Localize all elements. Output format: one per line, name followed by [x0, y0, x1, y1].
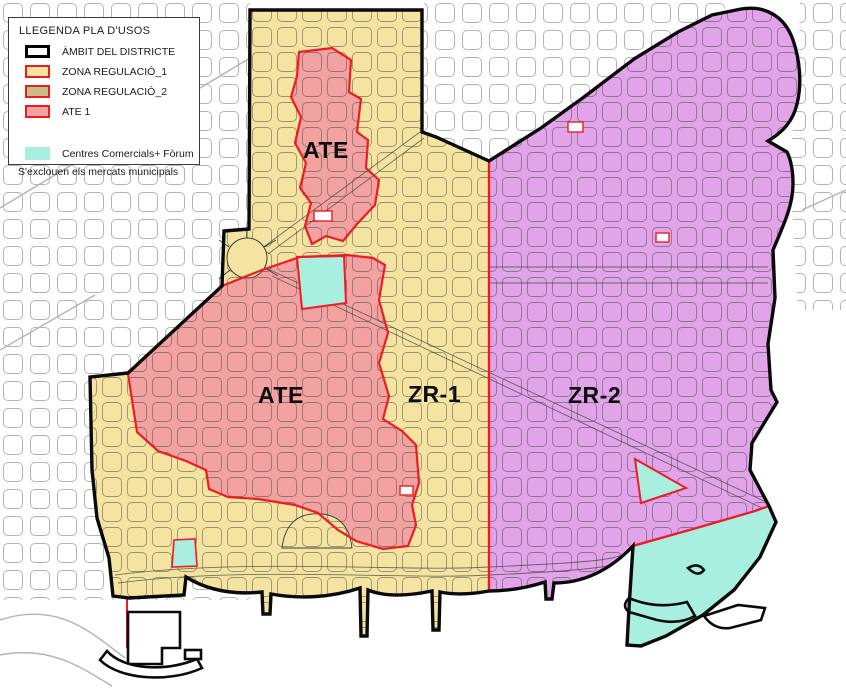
commercial-forum-swatch: [25, 147, 50, 160]
legend-item-label: ZONA REGULACIÓ_1: [62, 66, 167, 78]
legend-note: S'exclouen els mercats municipals: [18, 166, 193, 178]
legend-item-label: ATE 1: [62, 106, 90, 118]
market-4: [314, 211, 332, 221]
legend-item-label: ZONA REGULACIÓ_2: [62, 86, 167, 98]
legend-item-zr2: ZONA REGULACIÓ_2: [25, 84, 193, 99]
map-label-ate-main: ATE: [258, 382, 304, 408]
legend-item-district: ÀMBIT DEL DISTRICTE: [25, 44, 193, 59]
map-label-zr2: ZR-2: [568, 382, 621, 408]
legend-item-label: ÀMBIT DEL DISTRICTE: [62, 46, 175, 58]
commercial-area-upper: [297, 256, 346, 309]
zoning-map-page: ATE ATE ZR-1 ZR-2 LLEGENDA PLA D'USOS ÀM…: [0, 0, 846, 688]
legend-item-zr1: ZONA REGULACIÓ_1: [25, 64, 193, 79]
ate-1-swatch: [25, 105, 50, 118]
legend-item-commercial: Centres Comercials+ Fòrum: [25, 146, 193, 161]
port-structures: [100, 612, 202, 677]
market-1: [568, 122, 583, 132]
district-outline-swatch: [25, 45, 50, 58]
legend: LLEGENDA PLA D'USOS ÀMBIT DEL DISTRICTE …: [8, 17, 200, 165]
legend-title: LLEGENDA PLA D'USOS: [19, 25, 193, 37]
zone-regulation-1-swatch: [25, 65, 50, 78]
market-3: [400, 486, 413, 495]
zone-regulation-2-swatch: [25, 85, 50, 98]
legend-spacer: [18, 124, 193, 146]
market-2: [656, 233, 669, 242]
commercial-area-lower: [172, 539, 197, 567]
legend-item-label: Centres Comercials+ Fòrum: [62, 148, 194, 160]
map-label-zr1: ZR-1: [408, 381, 461, 407]
legend-item-ate: ATE 1: [25, 104, 193, 119]
map-label-ate-upper: ATE: [303, 137, 349, 163]
